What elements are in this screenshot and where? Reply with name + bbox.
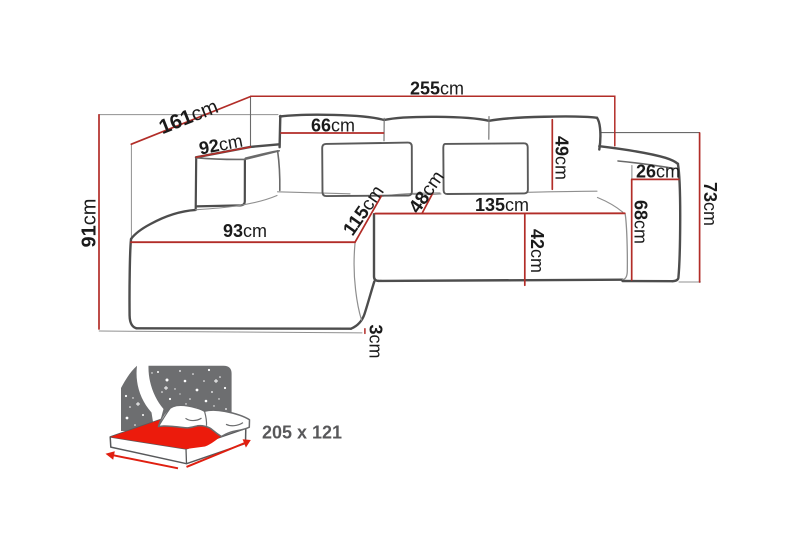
svg-text:92cm: 92cm bbox=[197, 131, 244, 159]
svg-text:73cm: 73cm bbox=[700, 182, 720, 226]
svg-text:49cm: 49cm bbox=[552, 136, 572, 180]
svg-text:135cm: 135cm bbox=[475, 195, 529, 215]
svg-text:66cm: 66cm bbox=[311, 116, 355, 136]
svg-text:255cm: 255cm bbox=[410, 79, 464, 99]
svg-text:115cm: 115cm bbox=[339, 182, 388, 240]
svg-text:205 x 121: 205 x 121 bbox=[262, 423, 342, 443]
svg-text:3cm: 3cm bbox=[366, 324, 386, 358]
svg-text:161cm: 161cm bbox=[156, 95, 222, 139]
svg-text:68cm: 68cm bbox=[631, 200, 651, 244]
svg-text:26cm: 26cm bbox=[636, 162, 680, 182]
svg-text:91cm: 91cm bbox=[79, 199, 101, 248]
svg-text:93cm: 93cm bbox=[223, 221, 267, 241]
svg-text:42cm: 42cm bbox=[527, 229, 547, 273]
